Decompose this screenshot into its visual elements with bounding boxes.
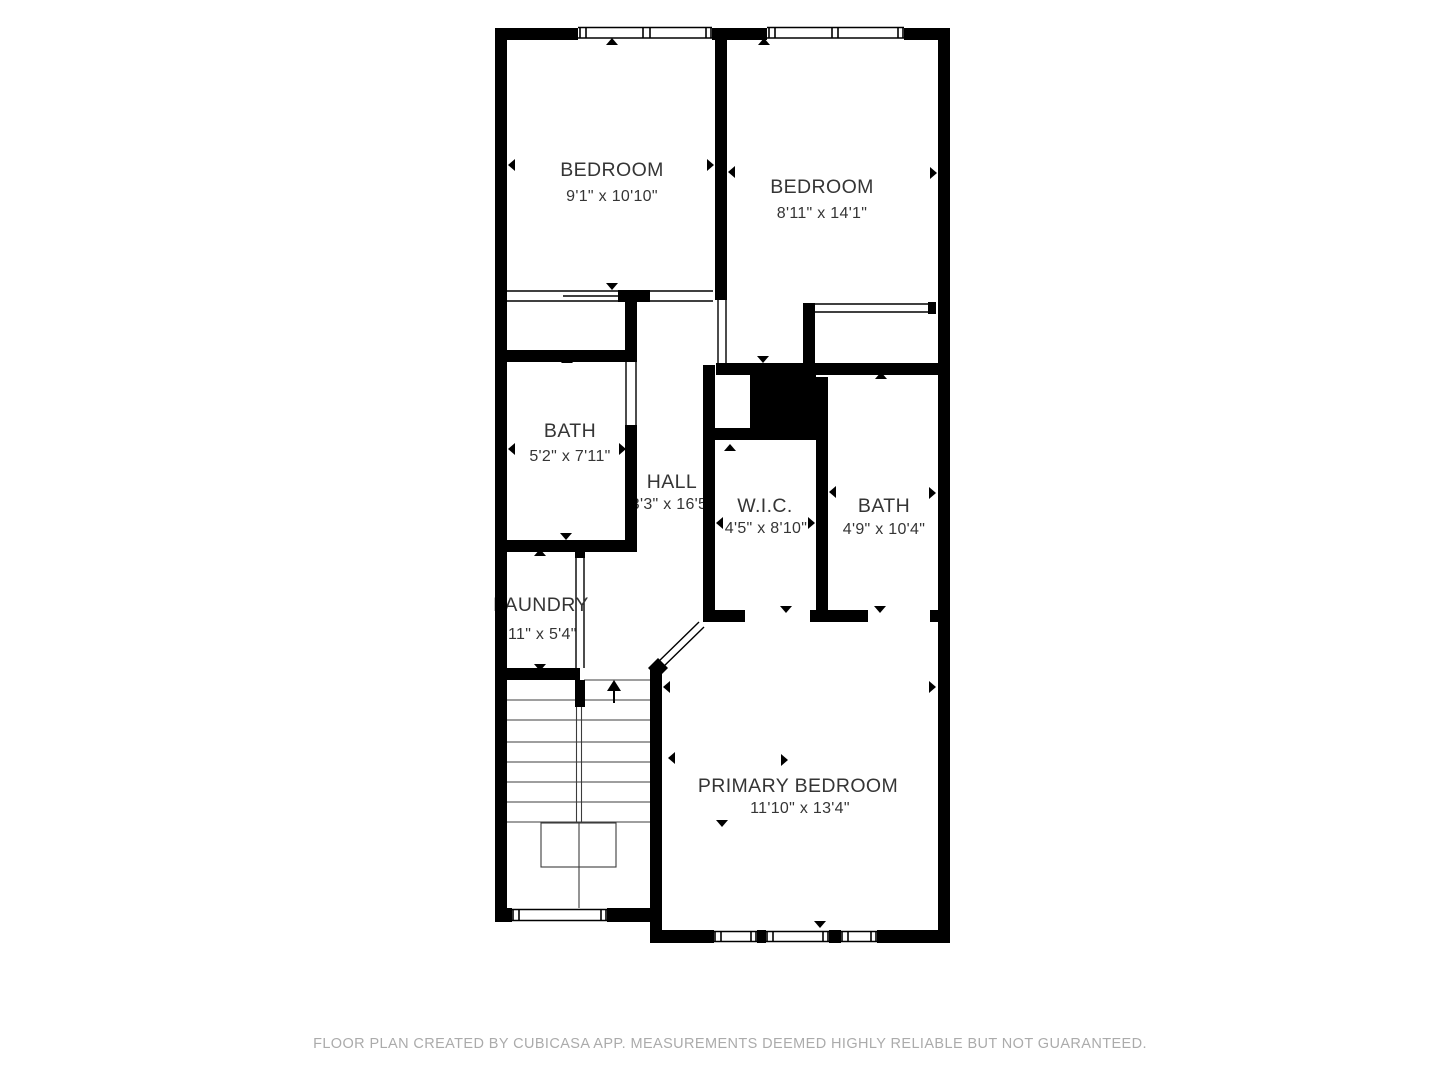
arrow-left-primary-upper bbox=[663, 681, 670, 693]
hall-dims: 3'3" x 16'5" bbox=[631, 496, 713, 513]
arrow-left-bath2 bbox=[829, 486, 836, 498]
arrow-right-primary-upper bbox=[929, 681, 936, 693]
wall-wic-bath-divider bbox=[816, 377, 828, 612]
room-label-wic: W.I.C. 4'5" x 8'10" bbox=[725, 495, 807, 537]
arrow-down-bath2-door bbox=[874, 606, 886, 613]
primary-bedroom-name: PRIMARY BEDROOM bbox=[698, 775, 898, 797]
bedroom1-dims: 9'1" x 10'10" bbox=[566, 188, 658, 205]
laundry-name: LAUNDRY bbox=[493, 594, 589, 616]
room-label-bath1: BATH 5'2" x 7'11" bbox=[529, 420, 610, 465]
wic-dims: 4'5" x 8'10" bbox=[725, 520, 807, 537]
arrow-left-bath1 bbox=[508, 443, 515, 455]
bath1-name: BATH bbox=[544, 420, 596, 442]
arrow-right-primary-mid bbox=[781, 754, 788, 766]
room-label-bath2: BATH 4'9" x 10'4" bbox=[843, 495, 925, 538]
hall-name: HALL bbox=[647, 471, 697, 493]
arrow-right-bedroom1 bbox=[707, 159, 714, 171]
wall-primary-left bbox=[650, 666, 662, 943]
room-label-hall: HALL 3'3" x 16'5" bbox=[631, 471, 713, 513]
arrow-down-primary-window bbox=[814, 921, 826, 928]
bath1-dims: 5'2" x 7'11" bbox=[529, 448, 610, 465]
room-label-primary-bedroom: PRIMARY BEDROOM 11'10" x 13'4" bbox=[698, 775, 898, 817]
window-primary-center bbox=[766, 930, 829, 943]
window-bedroom2-top bbox=[767, 27, 904, 39]
window-primary-left bbox=[714, 930, 757, 943]
arrow-right-bedroom2 bbox=[930, 167, 937, 179]
arrow-right-bath1 bbox=[619, 443, 626, 455]
sliding-door-bedroom1-closet bbox=[507, 291, 618, 301]
wall-hall-right bbox=[703, 365, 715, 610]
bedroom1-name: BEDROOM bbox=[560, 159, 664, 181]
bath2-dims: 4'9" x 10'4" bbox=[843, 521, 925, 538]
door-opening-bedroom2 bbox=[718, 300, 726, 363]
floor-plan-page: BEDROOM 9'1" x 10'10" BEDROOM 8'11" x 14… bbox=[0, 0, 1440, 1080]
arrow-right-wic bbox=[808, 517, 815, 529]
laundry-dims: 11" x 5'4" bbox=[508, 626, 577, 643]
primary-bedroom-dims: 11'10" x 13'4" bbox=[750, 800, 850, 817]
room-label-laundry: LAUNDRY 11" x 5'4" bbox=[493, 594, 589, 643]
window-stairwell bbox=[512, 908, 607, 922]
sliding-door-bedroom2-closet bbox=[815, 302, 936, 314]
arrow-down-bath1 bbox=[560, 533, 572, 540]
arrow-up-bedroom1 bbox=[606, 38, 618, 45]
arrow-left-primary-mid bbox=[668, 752, 675, 764]
arrow-left-wic bbox=[716, 517, 723, 529]
room-label-bedroom2: BEDROOM 8'11" x 14'1" bbox=[770, 176, 874, 222]
bedroom2-dims: 8'11" x 14'1" bbox=[777, 205, 867, 222]
door-opening-bedroom1 bbox=[650, 291, 713, 301]
arrow-down-primary bbox=[716, 820, 728, 827]
arrow-down-hall-top bbox=[757, 356, 769, 363]
floor-plan-canvas: BEDROOM 9'1" x 10'10" BEDROOM 8'11" x 14… bbox=[0, 0, 1440, 1080]
wall-bedroom-divider bbox=[715, 40, 727, 300]
arrow-right-bath2 bbox=[929, 487, 936, 499]
bath2-name: BATH bbox=[858, 495, 910, 517]
arrow-up-wic bbox=[724, 444, 736, 451]
wic-name: W.I.C. bbox=[737, 495, 792, 517]
arrow-down-wic-door bbox=[780, 606, 792, 613]
arrow-left-bedroom1 bbox=[508, 159, 515, 171]
room-label-bedroom1: BEDROOM 9'1" x 10'10" bbox=[560, 159, 664, 205]
bedroom2-name: BEDROOM bbox=[770, 176, 874, 198]
arrow-down-bedroom1 bbox=[606, 283, 618, 290]
footer-disclaimer: FLOOR PLAN CREATED BY CUBICASA APP. MEAS… bbox=[313, 1036, 1147, 1052]
window-bedroom1-top bbox=[578, 27, 712, 39]
window-primary-right bbox=[841, 930, 877, 943]
arrow-left-bedroom2 bbox=[728, 166, 735, 178]
door-opening-bath1 bbox=[626, 362, 636, 425]
stairs bbox=[507, 680, 650, 908]
